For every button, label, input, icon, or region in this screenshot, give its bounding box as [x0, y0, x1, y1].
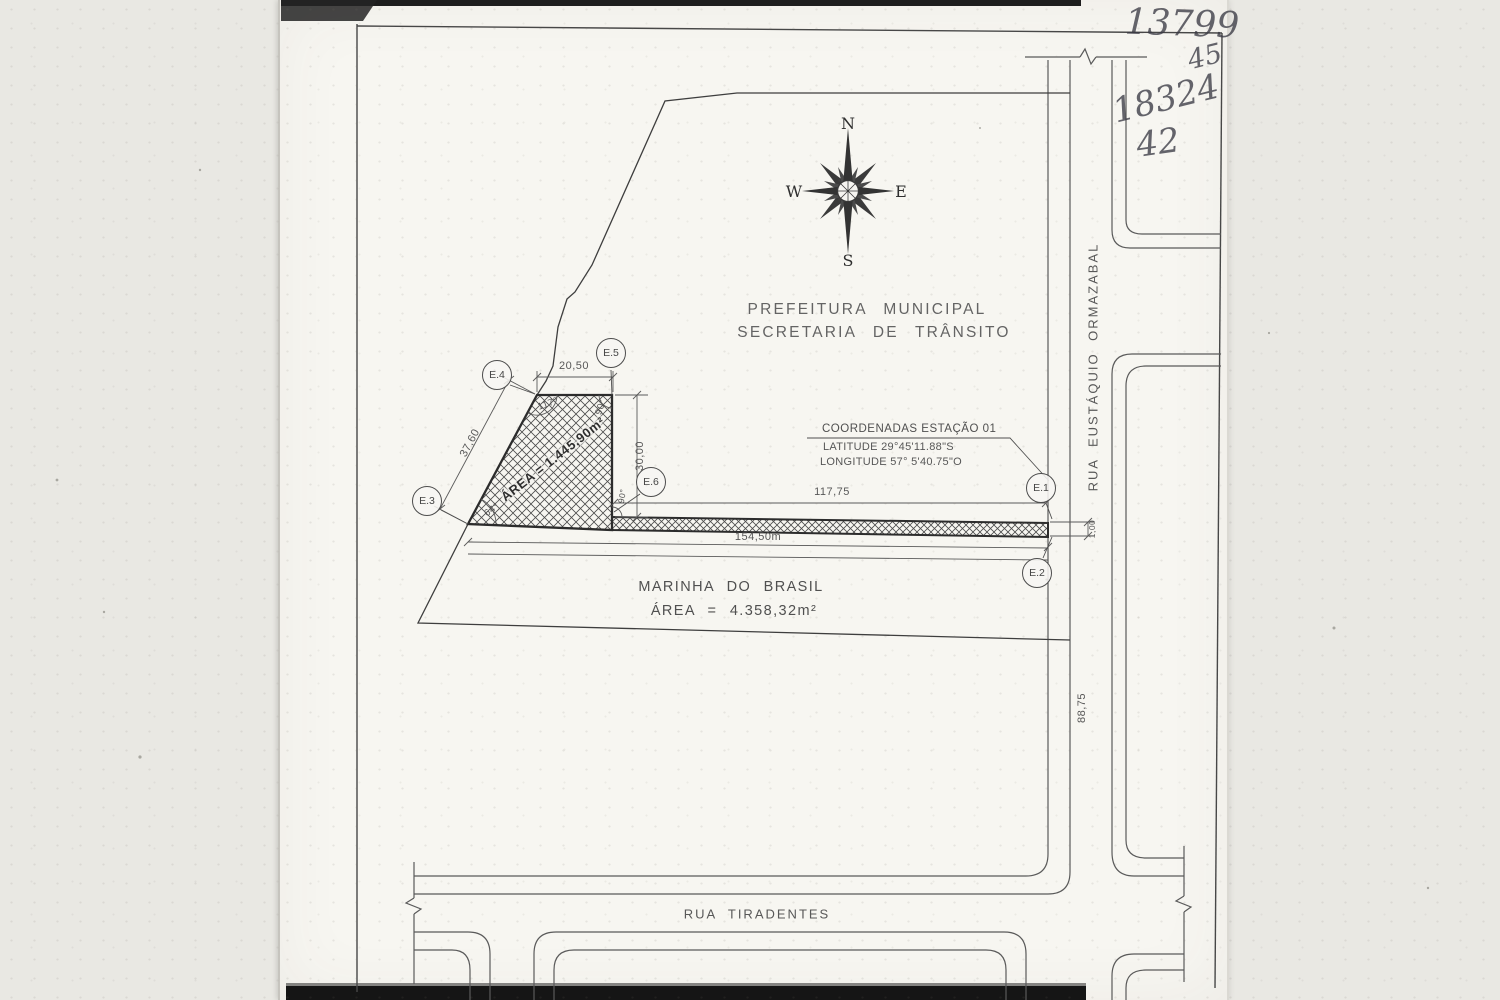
dimension-base-length: 154,50m: [735, 531, 781, 543]
plan-labels: 13799 45 18324 42 PREFEITURA MUNICIPAL S…: [0, 0, 1500, 1000]
parcel-area-label: ÁREA = 1.445,90m²: [498, 414, 608, 505]
handwritten-number-1: 13799: [1124, 2, 1240, 47]
dimension-top-width: 20,50: [559, 360, 589, 372]
angle-e6: 90°: [616, 488, 628, 504]
dimension-street-length: 88,75: [1076, 693, 1088, 723]
station-marker-e6: E.6: [636, 467, 666, 497]
angle-e4: 117°: [536, 395, 559, 413]
street-name-south: RUA TIRADENTES: [684, 907, 830, 922]
handwritten-number-4: 42: [1134, 120, 1182, 166]
coordinates-latitude: LATITUDE 29°45'11.88"S: [823, 441, 954, 453]
dimension-left-side: 37,60: [458, 427, 483, 459]
station-marker-e2: E.2: [1022, 558, 1052, 588]
title-line-2: SECRETARIA DE TRÂNSITO: [737, 324, 1010, 342]
coordinates-longitude: LONGITUDE 57° 5'40.75"O: [820, 456, 962, 468]
angle-e3: 64°: [482, 501, 501, 519]
coordinates-heading: COORDENADAS ESTAÇÃO 01: [822, 423, 996, 435]
station-marker-e4: E.4: [482, 360, 512, 390]
dimension-strip-width: 1,00: [1087, 520, 1097, 539]
scanned-site-plan: N S E W 13799 45 18324 42 PREFEITURA MUN…: [0, 0, 1500, 1000]
station-marker-e5: E.5: [596, 338, 626, 368]
marinha-area-label: ÁREA = 4.358,32m²: [651, 603, 817, 619]
marinha-name-label: MARINHA DO BRASIL: [638, 579, 823, 595]
station-marker-e1: E.1: [1026, 473, 1056, 503]
angle-e5: 90°: [593, 398, 608, 416]
dimension-right-side: 30,00: [634, 441, 646, 471]
title-line-1: PREFEITURA MUNICIPAL: [748, 301, 987, 319]
dimension-strip-length: 117,75: [814, 486, 850, 498]
station-marker-e3: E.3: [412, 486, 442, 516]
street-name-east: RUA EUSTÁQUIO ORMAZABAL: [1086, 243, 1101, 492]
